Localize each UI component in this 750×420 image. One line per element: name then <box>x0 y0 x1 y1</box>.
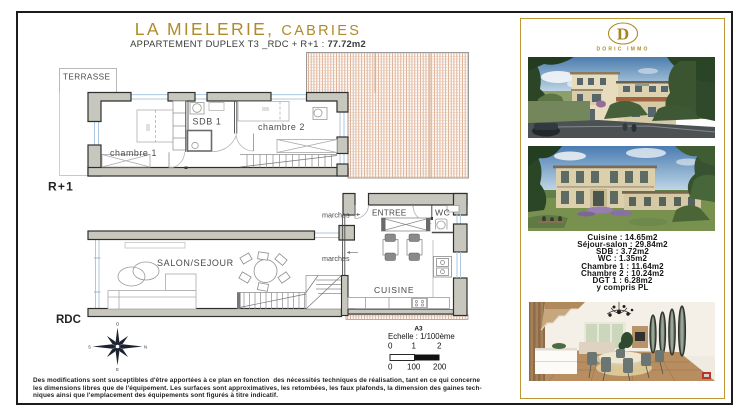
svg-text:TERRASSE: TERRASSE <box>63 73 110 82</box>
svg-text:chambre 2: chambre 2 <box>258 122 305 132</box>
svg-text:marches: marches <box>322 211 350 220</box>
svg-text:chambre 1: chambre 1 <box>110 148 157 158</box>
svg-text:2: 2 <box>437 342 442 351</box>
svg-text:SDB 1: SDB 1 <box>193 117 222 127</box>
svg-text:WC: WC <box>435 208 450 218</box>
svg-text:E: E <box>116 367 119 372</box>
svg-text:ENTREE: ENTREE <box>372 209 407 218</box>
svg-text:N: N <box>144 345 147 350</box>
svg-text:1: 1 <box>412 342 417 351</box>
svg-text:Echelle : 1/100ème: Echelle : 1/100ème <box>388 332 455 341</box>
svg-text:0: 0 <box>388 342 393 351</box>
svg-text:200: 200 <box>433 363 447 372</box>
svg-text:SALON/SEJOUR: SALON/SEJOUR <box>157 258 234 268</box>
svg-text:0: 0 <box>388 363 393 372</box>
svg-text:DORIC IMMO: DORIC IMMO <box>596 47 649 53</box>
svg-text:marches: marches <box>322 254 350 263</box>
svg-text:S: S <box>88 345 91 350</box>
svg-text:R+1: R+1 <box>48 180 74 194</box>
svg-text:O: O <box>116 322 120 327</box>
svg-text:RDC: RDC <box>56 314 81 326</box>
svg-text:CUISINE: CUISINE <box>374 285 414 295</box>
svg-text:100: 100 <box>407 363 421 372</box>
svg-text:D: D <box>617 25 629 44</box>
